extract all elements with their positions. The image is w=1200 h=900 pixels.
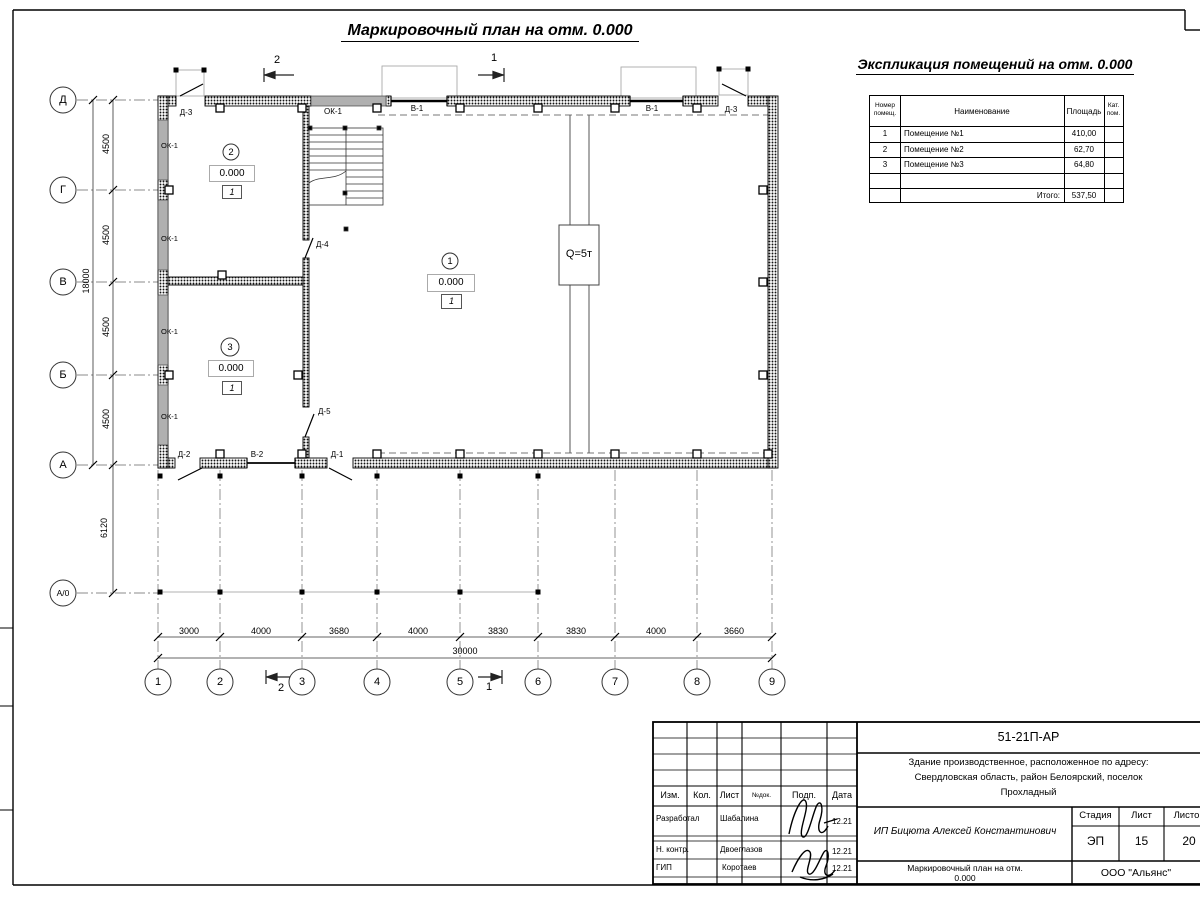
table-line [870,142,1123,143]
dimension-ticks [89,96,776,662]
table-row-area: 410,00 [1064,129,1104,138]
a0-post-line [158,590,541,595]
col-header-area: Площадь [1064,107,1104,116]
canopy-posts [158,67,751,479]
axis-label-5: 5 [445,676,475,688]
axis-label-6: 6 [523,676,553,688]
drawing-sheet: { "page": { "main_title": "Маркировочный… [0,0,1200,900]
mark-gate-v1-left: В-1 [403,104,431,113]
stamp-role-developer: Разработал [656,814,700,823]
axis-label-7: 7 [600,676,630,688]
dim-4500-1: 4500 [101,124,111,164]
dim-18000: 18000 [81,256,91,306]
axis-label-b: Б [48,369,78,381]
stamp-date-gip: 12.21 [827,864,857,873]
table-line [870,173,1123,174]
stamp-sheet-label: Лист [1119,810,1164,821]
stamp-date-developer: 12.21 [827,817,857,826]
stamp-project-line1: Здание производственное, расположенное п… [862,757,1195,768]
stamp-col-doc: №док. [742,792,781,799]
mark-window-left-1: ОК-1 [161,141,178,150]
axis-label-a: А [48,459,78,471]
stair [308,126,383,231]
mark-door-d3-left: Д-3 [172,108,200,117]
mark-window-top: ОК-1 [319,107,347,116]
canopies [176,66,748,98]
axis-label-a0: А/0 [48,588,78,598]
dim-3680: 3680 [319,626,359,636]
page-title: Маркировочный план на отм. 0.000 [300,22,680,40]
section-1-top: 1 [488,52,500,64]
dim-3000: 3000 [169,626,209,636]
table-row-name: Помещение №1 [904,129,964,138]
stamp-name-gip: Коротаев [722,863,757,872]
room-3-category: 1 [222,381,242,395]
room-2-category: 1 [222,185,242,199]
stamp-project-line2: Свердловская область, район Белоярский, … [862,772,1195,783]
col-header-num2: помещ. [870,110,900,117]
stamp-sheet-value: 15 [1119,834,1164,848]
section-2-top: 2 [271,54,283,66]
stamp-client: ИП Бицюта Алексей Константинович [860,826,1070,837]
stamp-role-gip: ГИП [656,863,672,872]
table-row-name: Помещение №3 [904,160,964,169]
stamp-name-ncontrol: Двоеглазов [720,845,763,854]
mark-window-left-2: ОК-1 [161,234,178,243]
stamp-doc-number: 51-21П-АР [857,730,1200,744]
dim-4500-3: 4500 [101,307,111,347]
dimension-lines [93,100,772,658]
axis-label-1: 1 [143,676,173,688]
crane-capacity-label: Q=5т [560,248,598,260]
explication-table: Номер помещ. Наименование Площадь Кат. п… [869,95,1124,203]
axis-label-2: 2 [205,676,235,688]
stamp-col-data: Дата [827,790,857,800]
room-3-number: 3 [220,342,240,353]
axis-label-g: Г [48,184,78,196]
section-1-bottom: 1 [483,681,495,693]
stamp-name-developer: Шабалина [720,814,759,823]
explication-title: Экспликация помещений на отм. 0.000 [845,56,1145,72]
table-line [870,126,1123,127]
table-line [870,188,1123,189]
stamp-date-ncontrol: 12.21 [827,847,857,856]
stamp-sheets-label: Листов [1164,810,1200,821]
table-row-num: 1 [870,129,900,138]
room-1-number: 1 [440,256,460,267]
table-row-num: 3 [870,160,900,169]
table-line [870,157,1123,158]
mark-door-d2: Д-2 [172,450,196,459]
mark-door-d3-right: Д-3 [717,105,745,114]
stamp-col-kol: Кол. [687,790,717,800]
stamp-role-ncontrol: Н. контр. [656,845,689,854]
mark-door-d4: Д-4 [316,240,329,249]
col-header-cat2: пом. [1104,110,1123,117]
col-header-name: Наименование [900,107,1064,116]
room-3-elevation: 0.000 [208,360,254,377]
dim-4000-b: 4000 [398,626,438,636]
room-2-elevation: 0.000 [209,165,255,182]
stamp-sheet-title-line1: Маркировочный план на отм. [860,863,1070,873]
mark-window-left-4: ОК-1 [161,412,178,421]
mark-gate-v2: В-2 [245,450,269,459]
stamp-sheets-value: 20 [1164,834,1200,848]
table-row-area: 64,80 [1064,160,1104,169]
dim-3830-b: 3830 [556,626,596,636]
stamp-company: ООО "Альянс" [1072,867,1200,879]
axis-label-d: Д [48,94,78,106]
axis-label-v: В [48,276,78,288]
table-total-label: Итого: [904,191,1060,200]
axis-label-4: 4 [362,676,392,688]
dim-4000-c: 4000 [636,626,676,636]
axis-lines [77,100,772,669]
windows [158,96,386,445]
mark-window-left-3: ОК-1 [161,327,178,336]
section-2-bottom: 2 [275,682,287,694]
dim-3830-a: 3830 [478,626,518,636]
room-circles [221,144,458,356]
dim-6120: 6120 [99,508,109,548]
table-row-num: 2 [870,145,900,154]
table-row-area: 62,70 [1064,145,1104,154]
axis-label-8: 8 [682,676,712,688]
mark-gate-v1-right: В-1 [638,104,666,113]
room-2-number: 2 [221,147,241,158]
dim-4500-2: 4500 [101,215,111,255]
stamp-col-podp: Подп. [781,790,827,800]
stamp-project-line3: Прохладный [862,787,1195,798]
room-1-elevation: 0.000 [427,274,475,292]
dim-4000-a: 4000 [241,626,281,636]
stamp-stage-label: Стадия [1072,810,1119,821]
dim-4500-4: 4500 [101,399,111,439]
stamp-col-izm: Изм. [653,790,687,800]
table-total-value: 537,50 [1064,191,1104,200]
stamp-stage-value: ЭП [1072,834,1119,848]
axis-label-9: 9 [757,676,787,688]
stamp-sheet-title-line2: 0.000 [860,873,1070,883]
mark-door-d1: Д-1 [325,450,349,459]
col-header-cat: Кат. [1104,102,1123,109]
axis-label-3: 3 [287,676,317,688]
col-header-num: Номер [870,102,900,109]
titleblock-grid [653,722,1200,884]
stamp-col-list: Лист [717,790,742,800]
dim-30000: 30000 [440,646,490,656]
dim-3660: 3660 [714,626,754,636]
room-1-category: 1 [441,294,462,309]
table-row-name: Помещение №2 [904,145,964,154]
mark-door-d5: Д-5 [318,407,331,416]
